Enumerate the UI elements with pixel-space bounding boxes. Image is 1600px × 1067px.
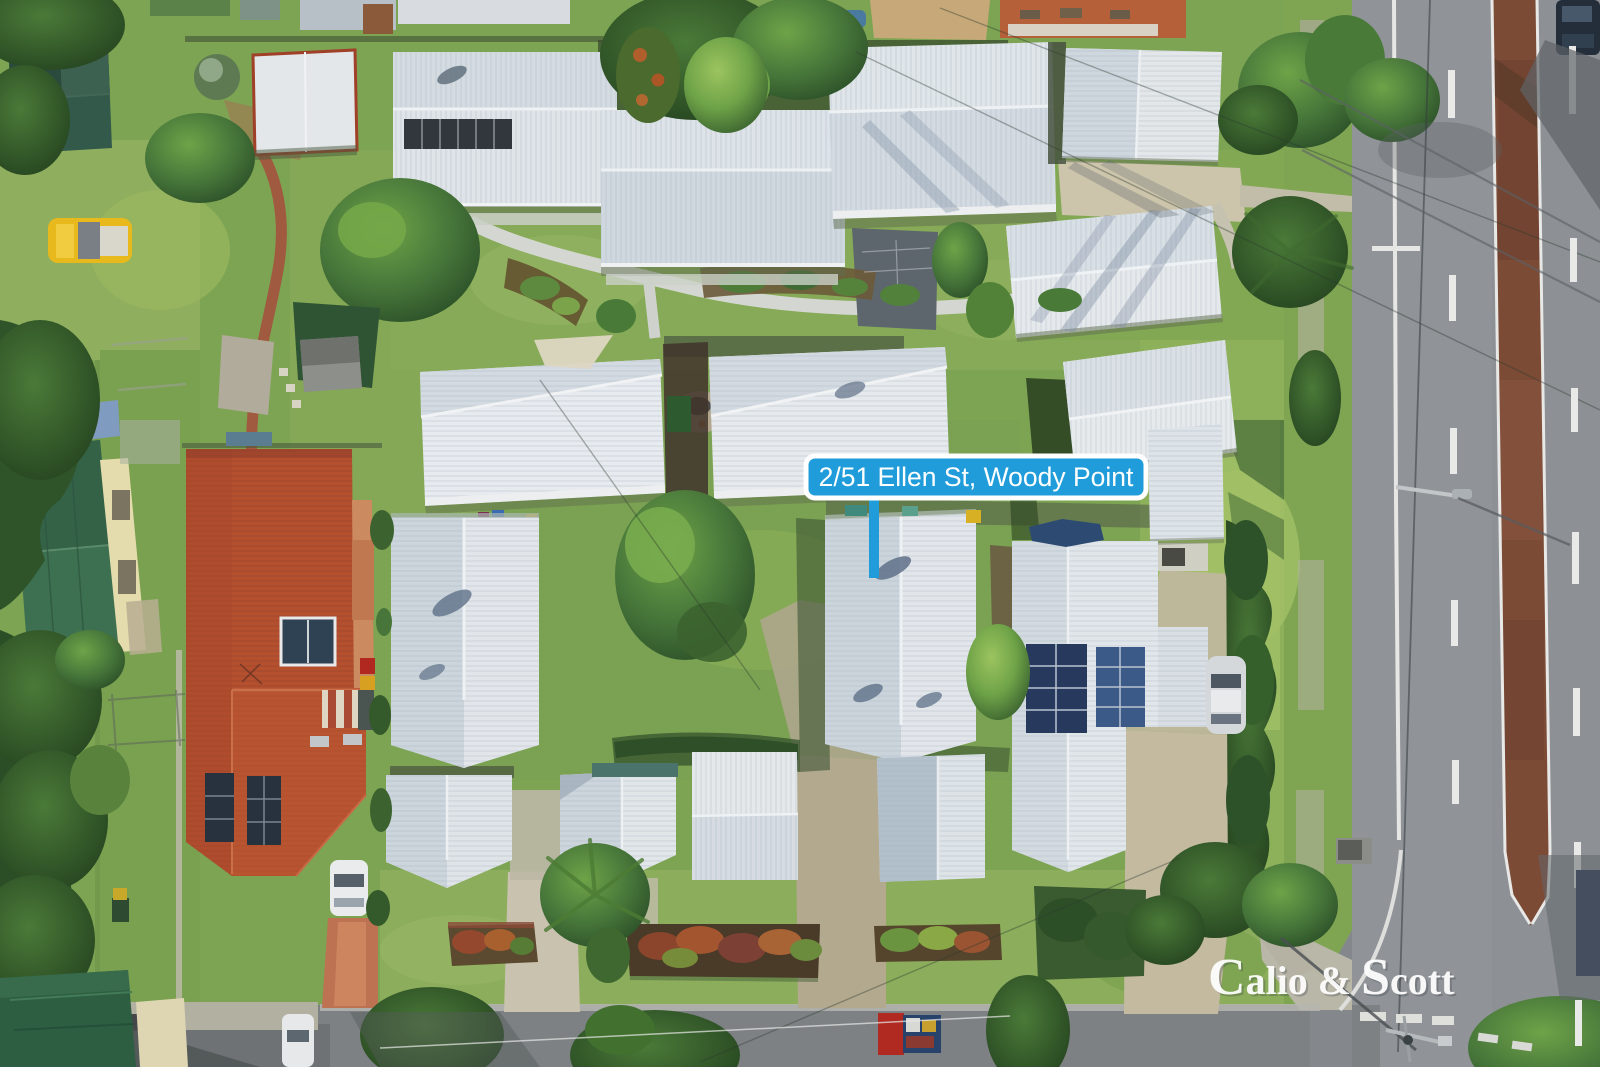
svg-text:2/51 Ellen St, Woody Point: 2/51 Ellen St, Woody Point <box>819 462 1134 492</box>
svg-text:Calio & Scott: Calio & Scott <box>1208 949 1455 1006</box>
